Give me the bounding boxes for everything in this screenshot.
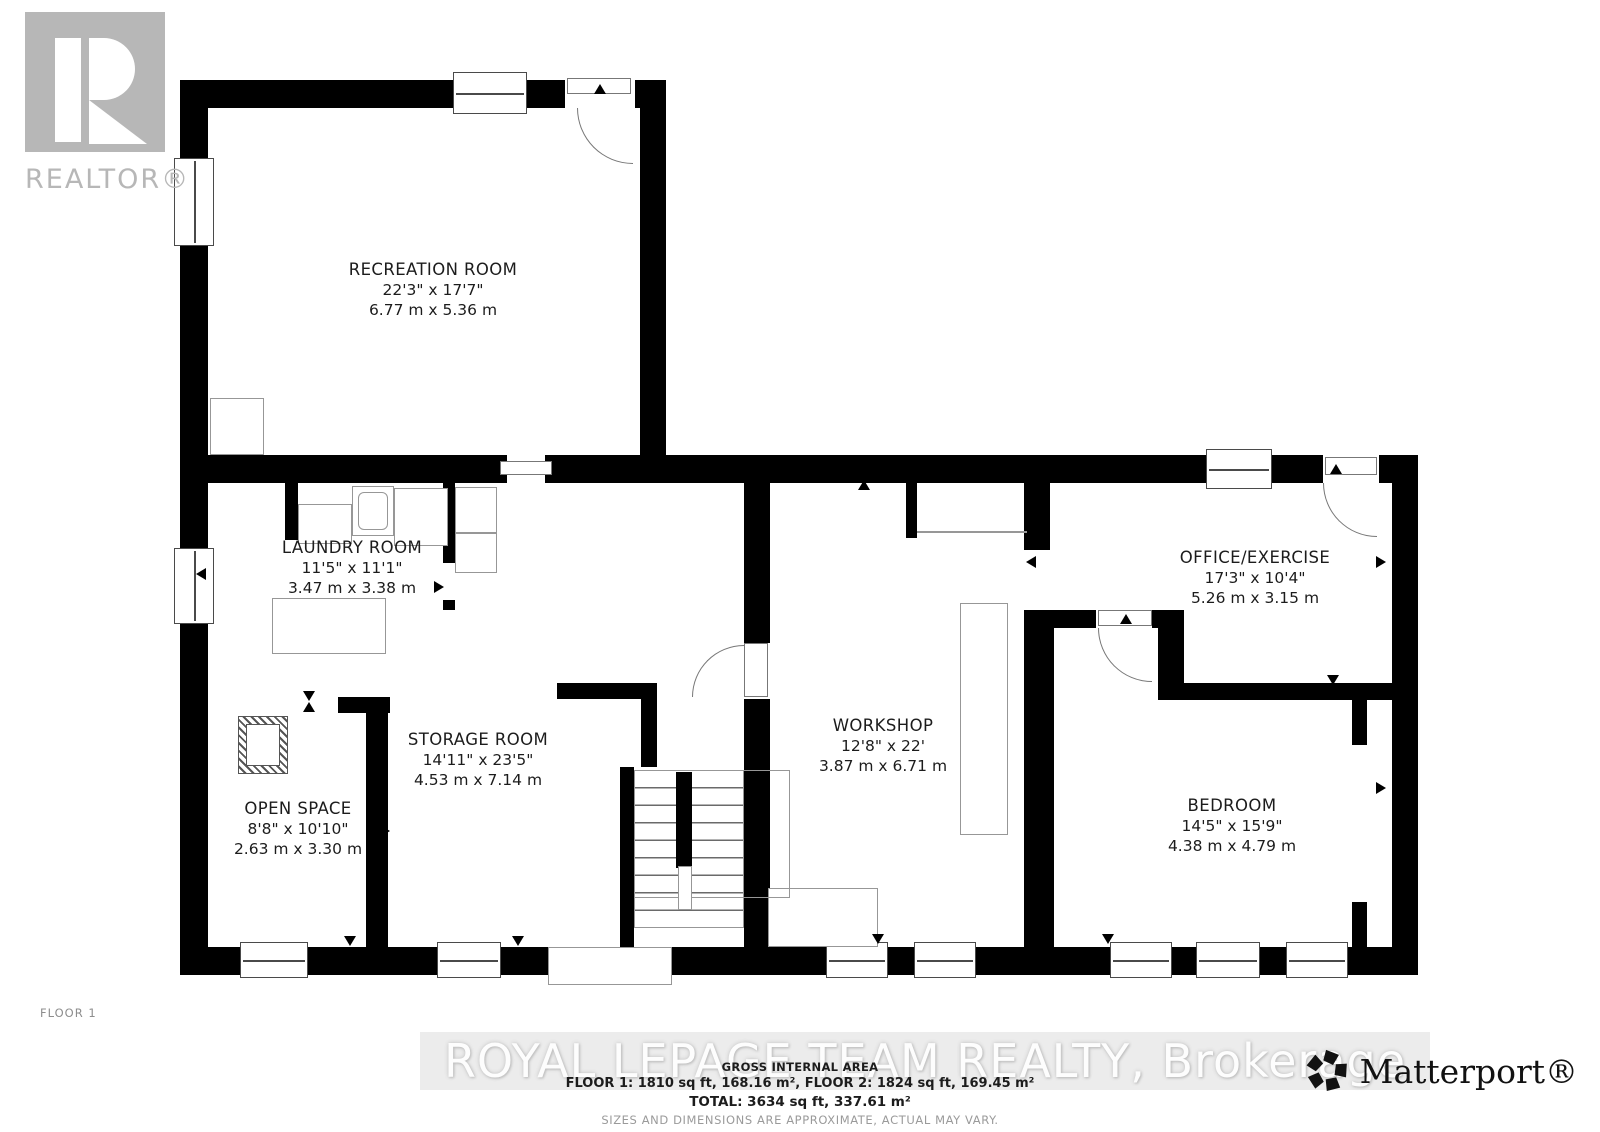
floor-number-label: FLOOR 1 (40, 1006, 97, 1020)
stair-outline (634, 770, 790, 898)
wall-openspace-storage (366, 697, 388, 947)
window-bedroom-bottom-2 (1196, 942, 1260, 978)
room-name: OFFICE/EXERCISE (1180, 548, 1330, 567)
room-label-open-space: OPEN SPACE 8'8" x 10'10" 2.63 m x 3.30 m (234, 799, 362, 858)
matterport-logo: Matterport® (1304, 1048, 1578, 1094)
wall-bed-stub-lower (1352, 902, 1367, 947)
wall-rec-right (640, 80, 666, 483)
opening-arrow-icon (434, 581, 444, 593)
window-openspace-bottom (240, 942, 308, 978)
stair-rail (678, 866, 692, 910)
room-dim-metric: 2.63 m x 3.30 m (234, 840, 362, 858)
area-summary-floors: FLOOR 1: 1810 sq ft, 168.16 m², FLOOR 2:… (400, 1076, 1200, 1091)
realtor-logo: REALTOR® (25, 12, 190, 195)
room-name: WORKSHOP (819, 716, 947, 735)
wall-office-bottom (1158, 683, 1418, 700)
window-workshop-bottom-1 (826, 942, 888, 978)
wall-laundry-stub (285, 483, 298, 540)
room-dim-imperial: 17'3" x 10'4" (1180, 569, 1330, 587)
wall-workshop-nook-stub (906, 483, 917, 538)
opening-arrow-icon (1327, 675, 1339, 685)
area-summary-total: TOTAL: 3634 sq ft, 337.61 m² (400, 1094, 1200, 1110)
room-label-laundry: LAUNDRY ROOM 11'5" x 11'1" 3.47 m x 3.38… (282, 538, 422, 597)
opening-arrow-icon (1376, 556, 1386, 568)
room-label-workshop: WORKSHOP 12'8" x 22' 3.87 m x 6.71 m (819, 716, 947, 775)
stair-stringer (676, 772, 692, 868)
room-dim-imperial: 22'3" x 17'7" (349, 281, 518, 299)
window-bedroom-bottom-3 (1286, 942, 1348, 978)
wall-office-bed-left (1024, 610, 1096, 628)
area-summary: GROSS INTERNAL AREA FLOOR 1: 1810 sq ft,… (400, 1060, 1200, 1127)
room-dim-imperial: 8'8" x 10'10" (234, 820, 362, 838)
opening-arrow-icon (858, 480, 870, 490)
wall-workshop-bed-lower (1024, 613, 1054, 947)
room-name: OPEN SPACE (234, 799, 362, 818)
matterport-pinwheel-icon (1304, 1048, 1350, 1094)
opening-arrow-icon (196, 258, 206, 270)
realtor-logo-text: REALTOR® (25, 164, 190, 195)
room-dim-imperial: 14'5" x 15'9" (1168, 817, 1296, 835)
window-bedroom-bottom-1 (1110, 942, 1172, 978)
door-arc-bedroom (1098, 628, 1152, 682)
opening-arrow-icon (1376, 782, 1386, 794)
wall-bed-stub-upper (1352, 700, 1367, 745)
matterport-wordmark: Matterport® (1360, 1052, 1578, 1091)
opening-arrow-icon (872, 934, 884, 944)
wall-stair-corner (641, 683, 657, 767)
workshop-furnace (960, 603, 1008, 835)
window-storage-bottom (437, 942, 501, 978)
room-dim-imperial: 14'11" x 23'5" (408, 751, 548, 769)
wall-exterior-right (1392, 455, 1418, 975)
room-name: LAUNDRY ROOM (282, 538, 422, 557)
opening-arrow-icon (303, 691, 315, 701)
opening-arrow-icon (196, 568, 206, 580)
workshop-nook-line (917, 531, 1027, 533)
opening-arrow-icon (380, 825, 390, 837)
area-summary-title: GROSS INTERNAL AREA (400, 1060, 1200, 1074)
wall-door-pivot (443, 600, 455, 610)
door-leaf-rec-hall (500, 461, 552, 475)
opening-arrow-icon (512, 936, 524, 946)
wall-hall-workshop-upper (744, 483, 770, 643)
stair-bay (548, 947, 672, 985)
room-dim-imperial: 12'8" x 22' (819, 737, 947, 755)
door-arc-workshop (692, 645, 744, 697)
room-label-recreation: RECREATION ROOM 22'3" x 17'7" 6.77 m x 5… (349, 260, 518, 319)
wall-stair-left (620, 767, 634, 947)
wall-workshop-bed-upper (1024, 483, 1050, 550)
rec-closet (210, 398, 264, 455)
opening-arrow-icon (1026, 556, 1036, 568)
room-dim-metric: 3.47 m x 3.38 m (282, 579, 422, 597)
opening-arrow-icon (303, 702, 315, 712)
opening-arrow-icon (594, 84, 606, 94)
opening-arrow-icon (1330, 464, 1342, 474)
opening-arrow-icon (1120, 614, 1132, 624)
room-dim-metric: 3.87 m x 6.71 m (819, 757, 947, 775)
laundry-cabinet-upper (455, 487, 497, 533)
window-laundry-left (174, 548, 214, 624)
room-label-office: OFFICE/EXERCISE 17'3" x 10'4" 5.26 m x 3… (1180, 548, 1330, 607)
door-arc-office-entry (1323, 483, 1377, 537)
laundry-cabinet-lower (455, 533, 497, 573)
room-dim-metric: 4.38 m x 4.79 m (1168, 837, 1296, 855)
opening-arrow-icon (1102, 934, 1114, 944)
floor-plan-canvas: REALTOR® (0, 0, 1600, 1132)
room-name: BEDROOM (1168, 796, 1296, 815)
room-label-storage: STORAGE ROOM 14'11" x 23'5" 4.53 m x 7.1… (408, 730, 548, 789)
window-workshop-bottom-2 (914, 942, 976, 978)
fireplace-inner (246, 724, 280, 766)
room-dim-metric: 4.53 m x 7.14 m (408, 771, 548, 789)
door-arc-rec-entry (577, 108, 633, 164)
window-office-top (1206, 449, 1272, 489)
opening-arrow-icon (344, 936, 356, 946)
room-dim-imperial: 11'5" x 11'1" (282, 559, 422, 577)
room-label-bedroom: BEDROOM 14'5" x 15'9" 4.38 m x 4.79 m (1168, 796, 1296, 855)
room-dim-metric: 5.26 m x 3.15 m (1180, 589, 1330, 607)
opening-arrow-icon (644, 258, 654, 270)
room-name: STORAGE ROOM (408, 730, 548, 749)
room-name: RECREATION ROOM (349, 260, 518, 279)
door-leaf-workshop (744, 643, 768, 697)
laundry-sink (358, 492, 388, 530)
opening-arrow-icon (196, 812, 206, 824)
realtor-r-icon (25, 12, 165, 152)
room-dim-metric: 6.77 m x 5.36 m (349, 301, 518, 319)
laundry-island (272, 598, 386, 654)
window-rec-top (453, 72, 527, 114)
area-summary-disclaimer: SIZES AND DIMENSIONS ARE APPROXIMATE, AC… (400, 1113, 1200, 1127)
